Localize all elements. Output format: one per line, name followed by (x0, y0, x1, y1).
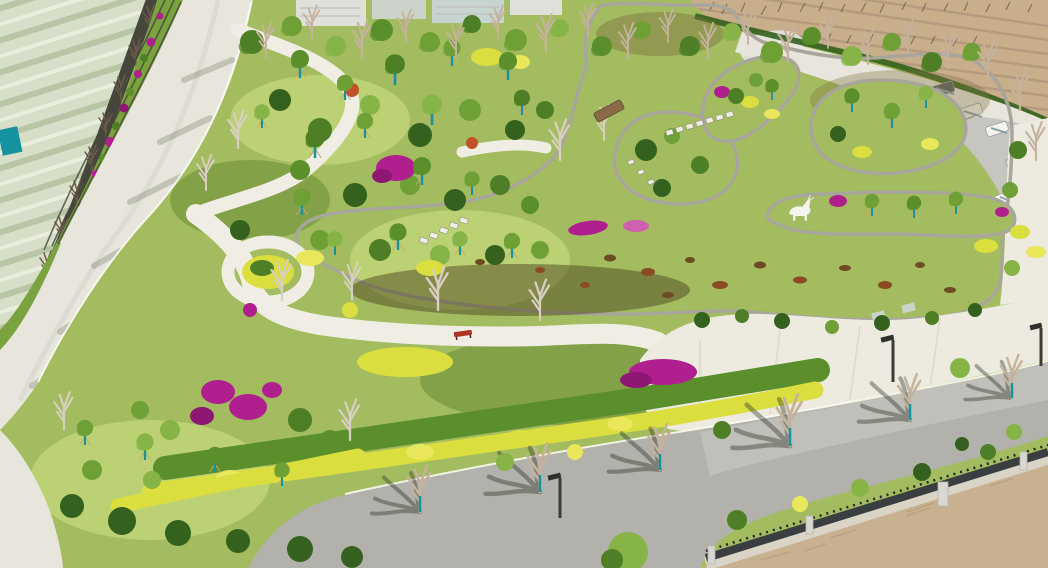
fence-post (938, 482, 948, 506)
scene-canvas: Aerial drone view of a newly landscaped … (0, 0, 1048, 568)
fence-post (806, 516, 813, 534)
right-island (811, 80, 966, 173)
bougainvillea (714, 86, 730, 98)
aerial-park-photo: Aerial drone view of a newly landscaped … (0, 0, 1048, 568)
building (510, 0, 562, 15)
hedge-island-core (250, 260, 274, 276)
water-shade (350, 264, 690, 316)
fence-post (708, 546, 715, 564)
red-shrub (466, 137, 478, 149)
bougainvillea-bed (620, 372, 652, 388)
building (372, 0, 426, 19)
fence-post (1020, 452, 1027, 470)
yellow-bed (357, 347, 453, 377)
